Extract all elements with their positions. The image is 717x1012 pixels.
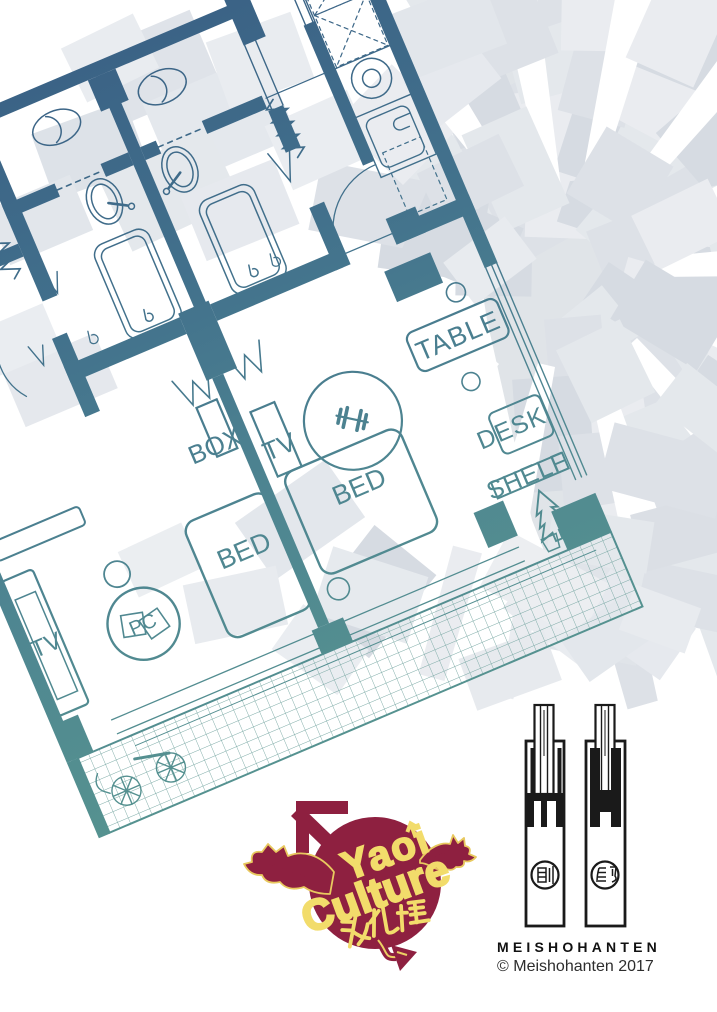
svg-text:© Meishohanten 2017: © Meishohanten 2017 — [497, 958, 654, 975]
svg-text:MEISHOHANTEN: MEISHOHANTEN — [497, 939, 661, 955]
svg-text:BOX: BOX — [184, 421, 246, 470]
svg-text:TV: TV — [258, 426, 301, 467]
